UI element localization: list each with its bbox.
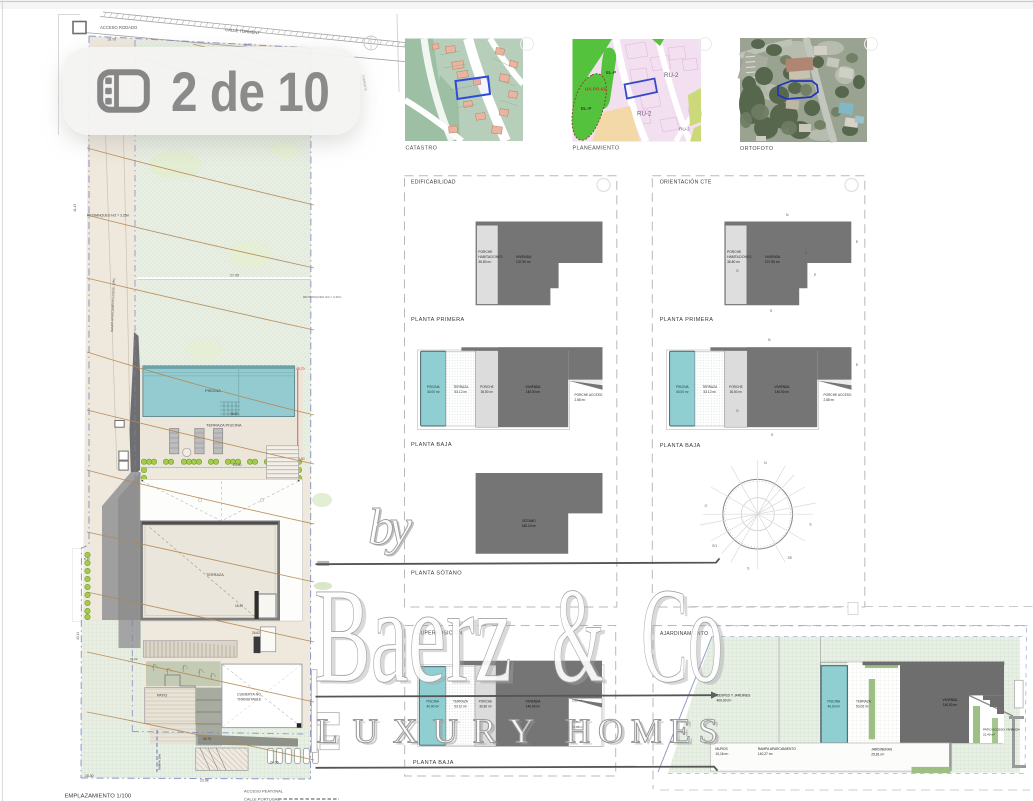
- svg-text:PLANEAMIENTO: PLANEAMIENTO: [573, 146, 620, 152]
- svg-text:UA PO-02: UA PO-02: [585, 87, 606, 92]
- svg-text:E: E: [810, 523, 813, 527]
- svg-text:23.98: 23.98: [200, 779, 209, 783]
- svg-text:RU-2: RU-2: [637, 111, 652, 118]
- svg-text:53.12 m²: 53.12 m²: [455, 390, 468, 394]
- svg-text:TERRAZA PISCINA: TERRAZA PISCINA: [206, 423, 242, 428]
- svg-text:&: &: [552, 561, 604, 711]
- svg-text:RAMPA 18%: RAMPA 18%: [158, 754, 162, 770]
- svg-text:N: N: [786, 213, 789, 217]
- svg-text:40.00 m²: 40.00 m²: [427, 390, 440, 394]
- svg-text:EDIFICABILIDAD: EDIFICABILIDAD: [411, 180, 456, 186]
- svg-text:PLANTA BAJA: PLANTA BAJA: [413, 760, 454, 766]
- svg-text:26.62: 26.62: [252, 631, 260, 635]
- svg-text:VIVIENDA: VIVIENDA: [526, 700, 542, 704]
- svg-text:PLANTA PRIMERA: PLANTA PRIMERA: [411, 317, 465, 323]
- svg-text:25,81 m²: 25,81 m²: [871, 753, 885, 757]
- svg-text:HABITACIONES: HABITACIONES: [727, 255, 752, 259]
- svg-text:EMPLAZAMIENTO 1/100: EMPLAZAMIENTO 1/100: [65, 794, 132, 800]
- svg-text:Baerz: Baerz: [314, 561, 512, 711]
- svg-text:HABITACIONES: HABITACIONES: [478, 255, 503, 259]
- svg-text:PORCHE: PORCHE: [727, 250, 742, 254]
- svg-text:6.10: 6.10: [84, 557, 90, 561]
- svg-text:182.10 m²: 182.10 m²: [522, 524, 536, 528]
- svg-text:PLANTA BAJA: PLANTA BAJA: [660, 443, 701, 449]
- svg-text:RU-2: RU-2: [679, 127, 690, 132]
- svg-text:PORCHE: PORCHE: [729, 385, 743, 389]
- svg-text:EL-P: EL-P: [581, 106, 591, 111]
- svg-text:O: O: [705, 504, 708, 508]
- svg-text:ORIENTACIÓN CTE: ORIENTACIÓN CTE: [660, 179, 712, 186]
- svg-text:53.12 m²: 53.12 m²: [704, 390, 717, 394]
- svg-text:RU-2: RU-2: [664, 72, 679, 79]
- svg-text:VIVIENDA: VIVIENDA: [775, 385, 791, 389]
- svg-text:36.80 m²: 36.80 m²: [478, 260, 492, 264]
- svg-text:137.90 m²: 137.90 m²: [516, 260, 532, 264]
- svg-text:41.13: 41.13: [73, 204, 77, 212]
- svg-text:27.95: 27.95: [230, 274, 239, 278]
- svg-text:PATIO ACCESO VIVIENDA: PATIO ACCESO VIVIENDA: [983, 728, 1020, 732]
- svg-text:O: O: [736, 269, 739, 273]
- svg-text:S: S: [747, 567, 750, 571]
- svg-text:PLANTA PRIMERA: PLANTA PRIMERA: [660, 317, 714, 323]
- svg-text:S: S: [771, 433, 774, 437]
- svg-text:PORCHE ACCESO: PORCHE ACCESO: [575, 393, 603, 397]
- svg-text:RETRANQUEO H/2 = 3.25m: RETRANQUEO H/2 = 3.25m: [87, 214, 129, 218]
- svg-text:VIVIENDA: VIVIENDA: [765, 255, 781, 259]
- svg-text:PLANTA BAJA: PLANTA BAJA: [411, 442, 452, 448]
- svg-text:36.80 m²: 36.80 m²: [730, 390, 743, 394]
- svg-text:34.02: 34.02: [130, 657, 138, 661]
- svg-text:40.00 m²: 40.00 m²: [676, 390, 689, 394]
- svg-text:S: S: [770, 309, 773, 313]
- svg-text:VIVIENDA: VIVIENDA: [516, 255, 532, 259]
- svg-text:N: N: [768, 338, 771, 342]
- svg-text:137.90 m²: 137.90 m²: [765, 260, 781, 264]
- svg-text:24.40: 24.40: [233, 463, 242, 467]
- svg-text:10,16 m²: 10,16 m²: [715, 752, 729, 756]
- svg-text:PISCINA: PISCINA: [676, 385, 690, 389]
- svg-text:15.30: 15.30: [85, 774, 94, 778]
- svg-text:SO: SO: [712, 544, 717, 548]
- svg-text:40,00 m²: 40,00 m²: [828, 705, 841, 709]
- svg-text:Co: Co: [641, 561, 723, 711]
- svg-text:EL-P: EL-P: [606, 70, 616, 75]
- svg-text:E: E: [856, 240, 859, 244]
- svg-text:TERRAZA: TERRAZA: [206, 573, 224, 577]
- svg-text:2.88 m²: 2.88 m²: [575, 398, 586, 402]
- svg-text:CALLE PORTUGAL: CALLE PORTUGAL: [244, 797, 280, 801]
- svg-text:26.60: 26.60: [230, 412, 238, 416]
- svg-text:ACCESO PEATONAL: ACCESO PEATONAL: [244, 789, 284, 794]
- svg-text:PISCINA: PISCINA: [827, 700, 841, 704]
- svg-text:PORCHE ACCESO: PORCHE ACCESO: [824, 393, 852, 397]
- svg-text:21,40 m²: 21,40 m²: [983, 733, 995, 737]
- svg-text:N: N: [764, 461, 767, 465]
- svg-text:36.80 m²: 36.80 m²: [481, 390, 494, 394]
- svg-text:2.88 m²: 2.88 m²: [824, 398, 835, 402]
- svg-text:E: E: [814, 273, 817, 277]
- svg-text:50,08 m²: 50,08 m²: [856, 705, 869, 709]
- svg-text:RETRANQUEO H/2 = 3.25m: RETRANQUEO H/2 = 3.25m: [303, 295, 342, 299]
- svg-text:JARDINERAS: JARDINERAS: [871, 748, 893, 752]
- svg-text:PATIO: PATIO: [157, 694, 167, 698]
- svg-text:CATASTRO: CATASTRO: [406, 146, 438, 152]
- svg-text:PISCINA: PISCINA: [427, 385, 441, 389]
- svg-text:TRANSITABLE: TRANSITABLE: [237, 698, 262, 702]
- svg-text:140.00 m²: 140.00 m²: [526, 390, 540, 394]
- svg-text:140,00 m²: 140,00 m²: [943, 703, 957, 707]
- svg-text:SE: SE: [788, 556, 793, 560]
- svg-text:40.14: 40.14: [76, 632, 80, 640]
- svg-text:TERRAZA: TERRAZA: [702, 385, 718, 389]
- svg-text:TERRAZA: TERRAZA: [856, 700, 872, 704]
- svg-text:VIVIENDA: VIVIENDA: [943, 698, 959, 702]
- svg-text:E: E: [856, 363, 859, 367]
- svg-text:PORCHE: PORCHE: [478, 250, 493, 254]
- svg-text:SÓTANO: SÓTANO: [522, 518, 536, 523]
- svg-text:18.78: 18.78: [107, 38, 116, 42]
- svg-text:ORTOFOTO: ORTOFOTO: [740, 146, 773, 152]
- svg-text:PORCHE: PORCHE: [480, 385, 494, 389]
- svg-text:TORRENTE: TORRENTE: [361, 74, 368, 91]
- svg-text:18.40: 18.40: [235, 604, 243, 608]
- svg-text:RAMPA APARCAMIENTO: RAMPA APARCAMIENTO: [758, 747, 797, 751]
- svg-text:140.00 m²: 140.00 m²: [775, 390, 789, 394]
- svg-text:VIVIENDA: VIVIENDA: [526, 385, 542, 389]
- svg-text:by: by: [368, 499, 413, 556]
- svg-text:24.36: 24.36: [270, 761, 279, 765]
- svg-text:ACCESO RODADO: ACCESO RODADO: [100, 25, 138, 30]
- svg-text:O: O: [736, 409, 739, 413]
- svg-text:140,27 m²: 140,27 m²: [758, 752, 774, 756]
- svg-text:45.70: 45.70: [296, 367, 305, 371]
- svg-text:CUBIERTA NO: CUBIERTA NO: [237, 693, 261, 697]
- svg-text:140.00 m²: 140.00 m²: [526, 705, 540, 709]
- svg-text:TERRAZA: TERRAZA: [453, 385, 469, 389]
- svg-text:36.80 m²: 36.80 m²: [727, 260, 741, 264]
